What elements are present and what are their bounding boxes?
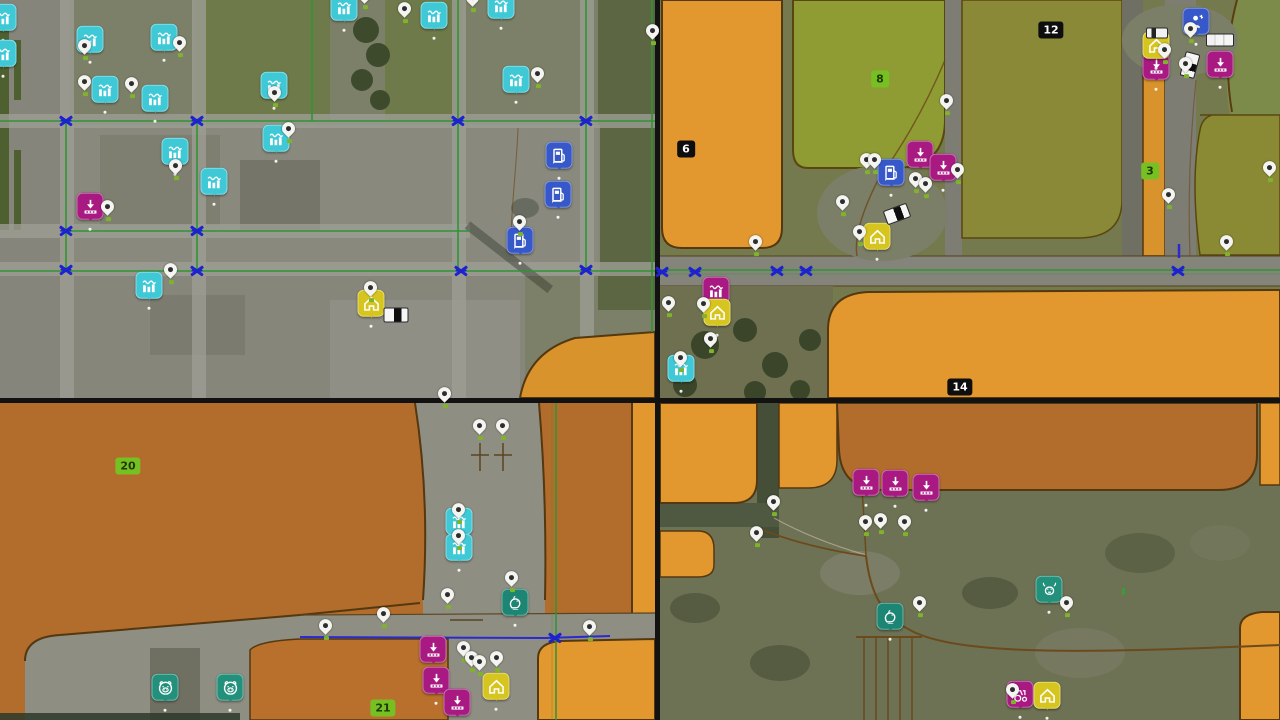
sell-point-icon[interactable] [853,469,880,496]
map-pin-icon[interactable] [766,494,782,516]
production-point-icon[interactable] [488,0,515,19]
map-pin-icon[interactable] [267,85,283,107]
map-pin-icon[interactable] [867,152,883,174]
road-junction-icon [59,224,74,239]
production-point-icon[interactable] [331,0,358,21]
map-pin-icon[interactable] [437,386,453,408]
road-junction-icon [688,265,703,280]
player-vehicle-icon [384,308,409,323]
quadrant-divider-horizontal [0,398,1280,403]
map-pin-icon[interactable] [703,331,719,353]
road-junction-icon [59,263,74,278]
road-junction-icon [190,224,205,239]
vehicle-icon [1206,34,1234,47]
map-pin-icon[interactable] [451,502,467,524]
road-junction-icon [579,114,594,129]
sell-point-icon[interactable] [420,636,447,663]
map-pin-icon[interactable] [1262,160,1278,182]
map-pin-icon[interactable] [451,528,467,550]
map-pin-icon[interactable] [582,619,598,641]
map-pin-icon[interactable] [1005,682,1021,704]
map-pin-icon[interactable] [357,0,373,9]
map-pin-icon[interactable] [858,514,874,536]
map-pin-icon[interactable] [318,618,334,640]
map-pin-icon[interactable] [950,162,966,184]
sell-point-icon[interactable] [444,689,471,716]
map-pin-icon[interactable] [749,525,765,547]
map-pin-icon[interactable] [1219,234,1235,256]
production-point-icon[interactable] [92,76,119,103]
map-quadrant-fields-south[interactable] [660,403,1280,720]
field-number-badge: 20 [115,458,140,475]
field-number-badge: 3 [1141,163,1159,180]
map-pin-icon[interactable] [873,512,889,534]
map-pin-icon[interactable] [530,66,546,88]
fuel-station-icon[interactable] [546,142,573,169]
map-pin-icon[interactable] [77,38,93,60]
map-pin-icon[interactable] [673,350,689,372]
map-pin-icon[interactable] [1157,42,1173,64]
production-point-icon[interactable] [142,85,169,112]
map-pin-icon[interactable] [172,35,188,57]
map-pin-icon[interactable] [124,76,140,98]
quadrant-divider-vertical [655,0,660,720]
road-junction-icon [59,114,74,129]
field-number-badge: 8 [871,71,889,88]
map-quadrant-field-20[interactable] [0,403,655,720]
field-number-badge: 6 [677,141,695,158]
map-pin-icon[interactable] [897,514,913,536]
farmhouse-icon[interactable] [1034,682,1061,709]
map-pin-icon[interactable] [912,595,928,617]
vehicle-icon [1146,28,1168,39]
map-pin-icon[interactable] [465,0,481,12]
map-pin-icon[interactable] [504,570,520,592]
production-point-icon[interactable] [503,66,530,93]
sell-point-icon[interactable] [882,470,909,497]
map-pin-icon[interactable] [168,158,184,180]
map-pin-icon[interactable] [281,121,297,143]
map-pin-icon[interactable] [472,654,488,676]
map-pin-icon[interactable] [939,93,955,115]
map-pin-icon[interactable] [100,199,116,221]
pig-pen-icon[interactable] [217,674,244,701]
production-point-icon[interactable] [201,168,228,195]
road-junction-icon [190,114,205,129]
fuel-station-icon[interactable] [545,181,572,208]
pig-pen-icon[interactable] [152,674,179,701]
road-junction-icon [770,264,785,279]
map-pin-icon[interactable] [472,418,488,440]
field-number-badge: 21 [370,700,395,717]
map-pin-icon[interactable] [163,262,179,284]
map-pin-icon[interactable] [440,587,456,609]
map-pin-icon[interactable] [376,606,392,628]
map-pin-icon[interactable] [696,296,712,318]
road-junction-icon [1171,264,1186,279]
map-pin-icon[interactable] [1178,56,1194,78]
chicken-coop-icon[interactable] [502,589,529,616]
map-pin-icon[interactable] [77,74,93,96]
map-pin-icon[interactable] [1161,187,1177,209]
terrain-layer [0,403,655,720]
chicken-coop-icon[interactable] [877,603,904,630]
production-point-icon[interactable] [0,4,17,31]
production-point-icon[interactable] [136,272,163,299]
sell-point-icon[interactable] [913,474,940,501]
map-pin-icon[interactable] [1059,595,1075,617]
road-junction-icon [548,631,563,646]
terrain-layer [660,403,1280,720]
field-number-badge: 12 [1038,22,1063,39]
map-pin-icon[interactable] [918,176,934,198]
road-junction-icon [454,264,469,279]
road-junction-icon [190,264,205,279]
road-junction-icon [655,265,670,280]
road-junction-icon [451,114,466,129]
map-pin-icon[interactable] [489,650,505,672]
sell-point-icon[interactable] [1207,51,1234,78]
map-pin-icon[interactable] [645,23,661,45]
game-map-collage: 68123142021 [0,0,1280,720]
map-pin-icon[interactable] [363,280,379,302]
map-pin-icon[interactable] [495,418,511,440]
map-pin-icon[interactable] [852,224,868,246]
field-number-badge: 14 [947,379,972,396]
road-junction-icon [799,264,814,279]
map-pin-icon[interactable] [397,1,413,23]
map-pin-icon[interactable] [748,234,764,256]
production-point-icon[interactable] [0,40,17,67]
map-pin-icon[interactable] [661,295,677,317]
map-pin-icon[interactable] [1183,21,1199,43]
farmhouse-icon[interactable] [483,673,510,700]
map-pin-icon[interactable] [835,194,851,216]
road-junction-icon [579,263,594,278]
map-pin-icon[interactable] [512,214,528,236]
production-point-icon[interactable] [421,2,448,29]
